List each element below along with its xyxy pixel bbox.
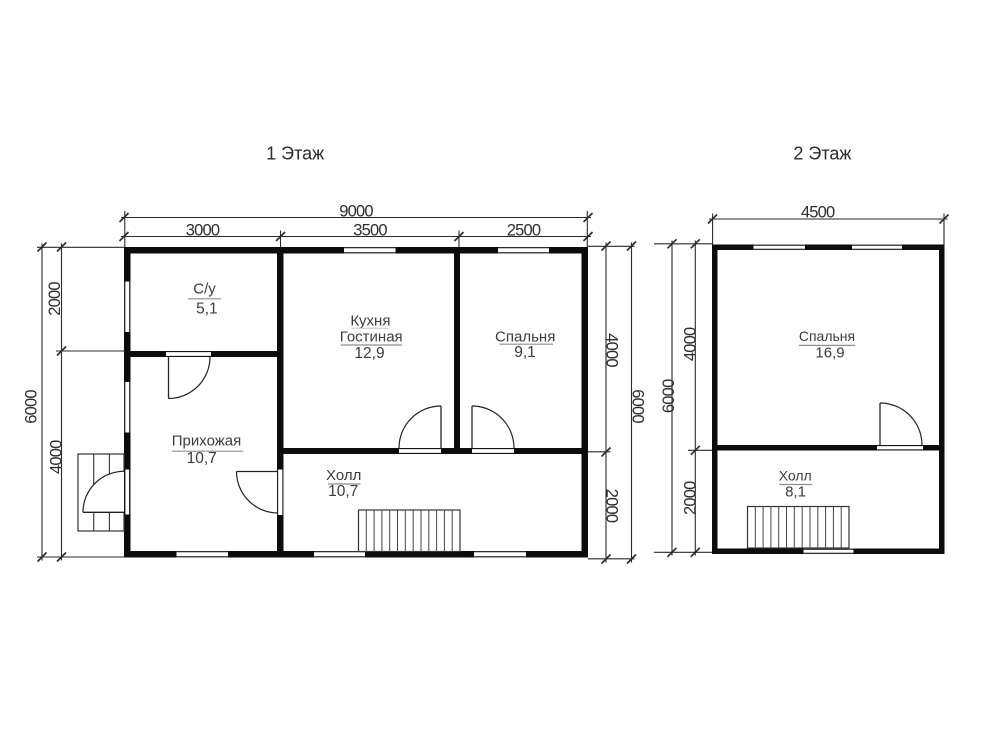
svg-text:10,7: 10,7	[187, 450, 217, 467]
svg-text:2000: 2000	[46, 282, 64, 316]
svg-text:1 Этаж: 1 Этаж	[266, 144, 324, 164]
svg-text:Спальня: Спальня	[495, 329, 555, 346]
svg-text:С/у: С/у	[193, 281, 216, 298]
svg-text:3000: 3000	[186, 221, 220, 239]
svg-text:12,9: 12,9	[354, 345, 384, 362]
svg-text:Прихожая: Прихожая	[172, 433, 242, 450]
svg-text:9,1: 9,1	[514, 344, 536, 361]
svg-text:4000: 4000	[48, 440, 66, 474]
svg-text:Холл: Холл	[779, 467, 812, 483]
svg-text:10,7: 10,7	[328, 483, 358, 500]
svg-text:Кухня: Кухня	[350, 313, 390, 330]
svg-text:Гостиная: Гостиная	[340, 329, 403, 346]
svg-text:2 Этаж: 2 Этаж	[793, 144, 851, 164]
svg-text:6000: 6000	[23, 390, 41, 424]
svg-text:2000: 2000	[603, 489, 621, 523]
svg-text:6000: 6000	[629, 389, 647, 423]
svg-text:Спальня: Спальня	[799, 328, 855, 344]
svg-text:4000: 4000	[681, 327, 699, 361]
svg-text:4500: 4500	[801, 204, 835, 222]
svg-text:8,1: 8,1	[785, 484, 806, 501]
svg-text:2000: 2000	[681, 481, 699, 515]
svg-text:4000: 4000	[603, 333, 621, 367]
svg-text:6000: 6000	[660, 379, 678, 413]
svg-text:5,1: 5,1	[196, 301, 218, 318]
svg-text:9000: 9000	[339, 202, 373, 220]
svg-text:16,9: 16,9	[815, 345, 844, 362]
svg-text:2500: 2500	[507, 221, 541, 239]
svg-text:Холл: Холл	[326, 467, 361, 484]
svg-text:3500: 3500	[353, 221, 387, 239]
